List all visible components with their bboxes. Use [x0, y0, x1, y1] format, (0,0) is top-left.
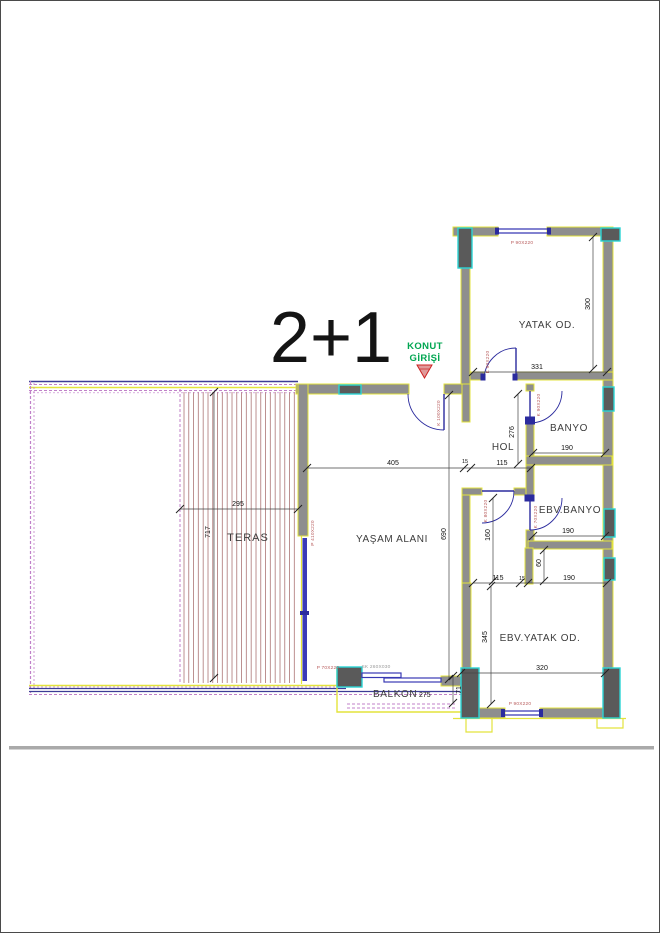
dim-yasam-height: 690	[441, 528, 448, 540]
label-yatak-door: K 90X220	[485, 351, 491, 374]
column	[604, 558, 615, 580]
dim-ebvbanyo-width: 190	[562, 528, 574, 535]
balcony-sliding-window	[362, 673, 441, 682]
label-corridor-door: K 80X220	[483, 500, 489, 523]
dim-yatak-height: 300	[585, 298, 592, 310]
column	[604, 509, 615, 537]
dim-hol-width: 115	[496, 460, 507, 467]
room-label-ebv-banyo: EBV.BANYO	[539, 505, 601, 516]
room-label-hol: HOL	[492, 442, 514, 453]
wall-banyo-bottom	[526, 456, 612, 465]
wall-yatak-bottom-right	[516, 372, 613, 380]
wall-banyo-left-top	[526, 384, 534, 391]
dim-yasam-width: 405	[387, 460, 399, 467]
dim-ebvbanyo-niche: 60	[536, 559, 543, 567]
label-ebvyatak-window: P 90X220	[509, 701, 532, 707]
window-ebvyatak-bottom	[501, 709, 543, 717]
wall-ebvbanyo-left-top	[526, 465, 534, 498]
wall-ebvyatak-bottom-right	[540, 708, 604, 718]
column	[601, 228, 620, 241]
dim-wall-thk: 15	[462, 459, 468, 465]
dim-wall-thk2: 15	[519, 576, 525, 582]
wall-corridor-west	[462, 495, 470, 583]
entry-marker: KONUT GİRİŞİ	[407, 341, 443, 378]
wall-ebvbanyo-bottom	[528, 541, 612, 549]
entry-label-line1: KONUT	[407, 341, 443, 352]
entry-label-line2: GİRİŞİ	[410, 353, 441, 364]
room-label-teras: TERAS	[227, 532, 269, 544]
dim-teras-width: 295	[232, 501, 244, 508]
column	[603, 668, 620, 718]
dim-banyo-height: 276	[509, 426, 516, 438]
plan-title: 2+1	[270, 298, 392, 378]
wall-yasam-left	[298, 384, 308, 536]
door-banyo	[526, 391, 563, 424]
column	[339, 385, 361, 394]
dim-balkon-height: 71	[456, 686, 463, 694]
window-yatak-top	[495, 228, 551, 235]
room-label-yatak: YATAK OD.	[519, 320, 576, 331]
label-banyo-door: K 90X220	[536, 394, 542, 417]
room-label-ebv-yatak: EBV.YATAK OD.	[500, 633, 581, 644]
room-label-yasam: YAŞAM ALANI	[356, 534, 428, 545]
dim-ebvyatak-width: 320	[536, 665, 548, 672]
dim-corridor-height: 160	[485, 529, 492, 541]
column	[603, 387, 614, 411]
label-balkon-window: P 70X220	[317, 665, 340, 671]
wall-right	[603, 228, 613, 674]
column	[461, 668, 479, 718]
label-yatak-window: P 90X220	[511, 240, 534, 246]
room-label-balkon: BALKON	[373, 689, 417, 700]
label-yasam-slider: P 410X220	[310, 520, 316, 546]
wall-corridor-right	[514, 488, 526, 495]
column	[458, 228, 472, 268]
room-label-banyo: BANYO	[550, 423, 588, 434]
bottom-contour	[453, 718, 626, 732]
floor-plan: 331 300 190 276 115 405 690 15 295 717 1…	[1, 1, 659, 932]
entry-arrow-icon	[417, 365, 432, 378]
label-balkon-slider: SK 260X030	[362, 664, 391, 670]
label-entry-door: K 100X220	[436, 400, 442, 426]
dim-banyo-width: 190	[561, 445, 573, 452]
wall-corridor-left	[462, 488, 482, 495]
dim-ebvyatak-height: 345	[482, 631, 489, 643]
wall-entry-right	[444, 384, 463, 394]
dim-balkon-width: 275	[419, 692, 431, 699]
dim-teras-height: 717	[205, 526, 212, 538]
wall-ebvyatak-left	[462, 583, 471, 669]
balcony-slider-block	[337, 667, 362, 687]
drawing-sheet: 331 300 190 276 115 405 690 15 295 717 1…	[0, 0, 660, 933]
dim-ebv-top-left: 115	[492, 575, 503, 582]
wall-niche	[525, 548, 533, 584]
dim-yatak-width: 331	[531, 364, 543, 371]
sheet-edge-line	[9, 746, 654, 750]
dim-ebv-top-right: 190	[563, 575, 575, 582]
wall-hol-left-top	[462, 384, 470, 422]
